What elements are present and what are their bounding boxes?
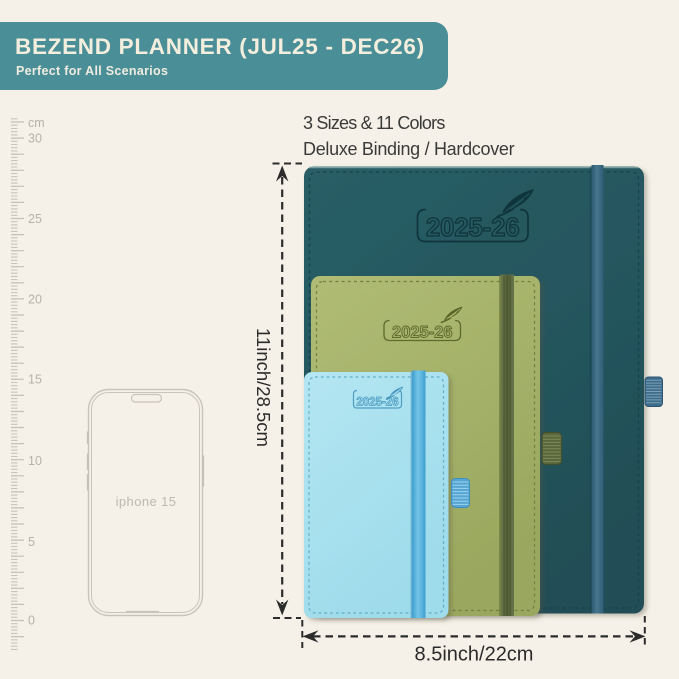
svg-text:25: 25 (28, 212, 42, 226)
svg-text:5: 5 (28, 535, 35, 549)
svg-text:2025-26: 2025-26 (356, 396, 398, 408)
svg-text:30: 30 (28, 132, 42, 146)
svg-text:10: 10 (28, 454, 42, 468)
svg-text:iphone 15: iphone 15 (116, 494, 177, 509)
svg-text:20: 20 (28, 293, 42, 307)
svg-text:2025-26: 2025-26 (392, 324, 453, 342)
svg-text:cm: cm (28, 116, 45, 130)
svg-text:15: 15 (28, 373, 42, 387)
svg-text:0: 0 (28, 614, 35, 628)
svg-text:8.5inch/22cm: 8.5inch/22cm (415, 644, 534, 666)
svg-text:2025-26: 2025-26 (426, 214, 520, 242)
svg-text:11inch/28.5cm: 11inch/28.5cm (253, 328, 274, 447)
